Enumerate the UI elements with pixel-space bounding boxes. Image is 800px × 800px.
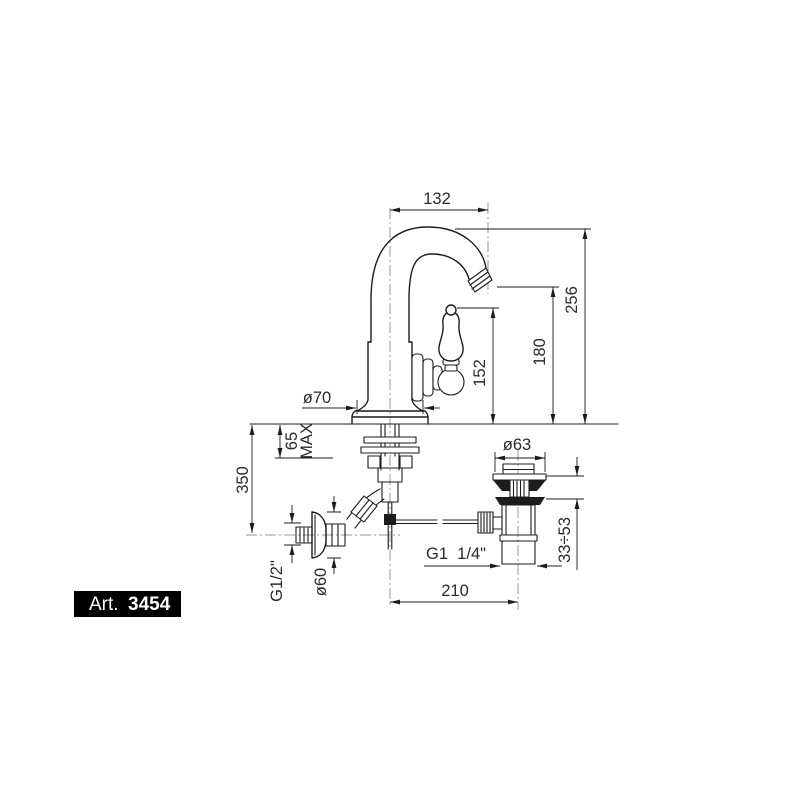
svg-text:Art. 3454: Art. 3454 [89, 594, 171, 615]
dim-handle-height-label: 152 [471, 359, 489, 387]
rod-clamp [384, 514, 396, 525]
dim-waste-thread: G1 1/4" [424, 545, 562, 566]
gasket-disc-lower [361, 447, 419, 453]
dim-spout-height: 180 [497, 287, 559, 424]
handle-knob-top [446, 305, 456, 315]
horizontal-rod [396, 520, 477, 524]
technical-drawing-canvas: 132 256 180 152 ø70 65 MAX 350 G1/2" [0, 0, 800, 800]
handle-boss-ring-2 [423, 359, 433, 396]
article-prefix: Art. [89, 594, 119, 615]
dim-spout-reach: 132 [390, 190, 488, 210]
mounting-nut-left [368, 456, 380, 468]
dim-drain-offset: 210 [390, 582, 518, 602]
dim-waste-clamp-range: 33÷53 [546, 457, 584, 570]
dim-handle-height: 152 [457, 308, 499, 424]
dim-base-diameter-label: ø70 [303, 389, 331, 407]
drain-assembly [478, 464, 546, 564]
pop-up-rod [384, 502, 477, 549]
spout [371, 227, 492, 342]
dim-spout-height-label: 180 [531, 338, 549, 366]
supply-hose [347, 489, 384, 528]
dim-supply-thread-label: G1/2" [268, 560, 286, 602]
article-badge: Art. 3454 [74, 591, 181, 617]
dim-max-thickness-unit: MAX [298, 423, 316, 459]
dim-supply-thread: G1/2" [268, 505, 301, 602]
dim-supply-drop-label: 350 [234, 466, 252, 494]
dim-supply-drop: 350 [234, 425, 252, 533]
mounting-nut-right [400, 456, 412, 468]
dim-drain-offset-label: 210 [441, 582, 469, 600]
article-number: 3454 [128, 594, 171, 615]
dim-flange-diameter-label: ø60 [312, 568, 330, 596]
dim-total-height: 256 [455, 229, 591, 424]
dim-waste-flange-diameter-label: ø63 [503, 436, 531, 454]
handle-collar-2 [445, 365, 457, 371]
gasket-disc-upper [364, 437, 416, 443]
handle-ball-joint [438, 369, 464, 395]
dim-waste-clamp-range-label: 33÷53 [556, 517, 574, 563]
dim-total-height-label: 256 [563, 286, 581, 314]
knob-stub [493, 517, 502, 529]
hose-nut [351, 496, 377, 522]
plug-cage [510, 480, 529, 497]
adjust-knob [478, 512, 493, 533]
handle-lever [412, 305, 464, 401]
drawing-page: 132 256 180 152 ø70 65 MAX 350 G1/2" [0, 0, 800, 800]
dim-spout-reach-label: 132 [423, 190, 451, 208]
handle-boss-ring-1 [412, 354, 423, 401]
waste-gasket [495, 497, 545, 505]
dim-waste-thread-label: G1 1/4" [426, 545, 486, 563]
dim-max-thickness: 65 MAX [275, 423, 333, 459]
handle-teardrop [439, 312, 463, 361]
waste-flange [493, 474, 546, 480]
